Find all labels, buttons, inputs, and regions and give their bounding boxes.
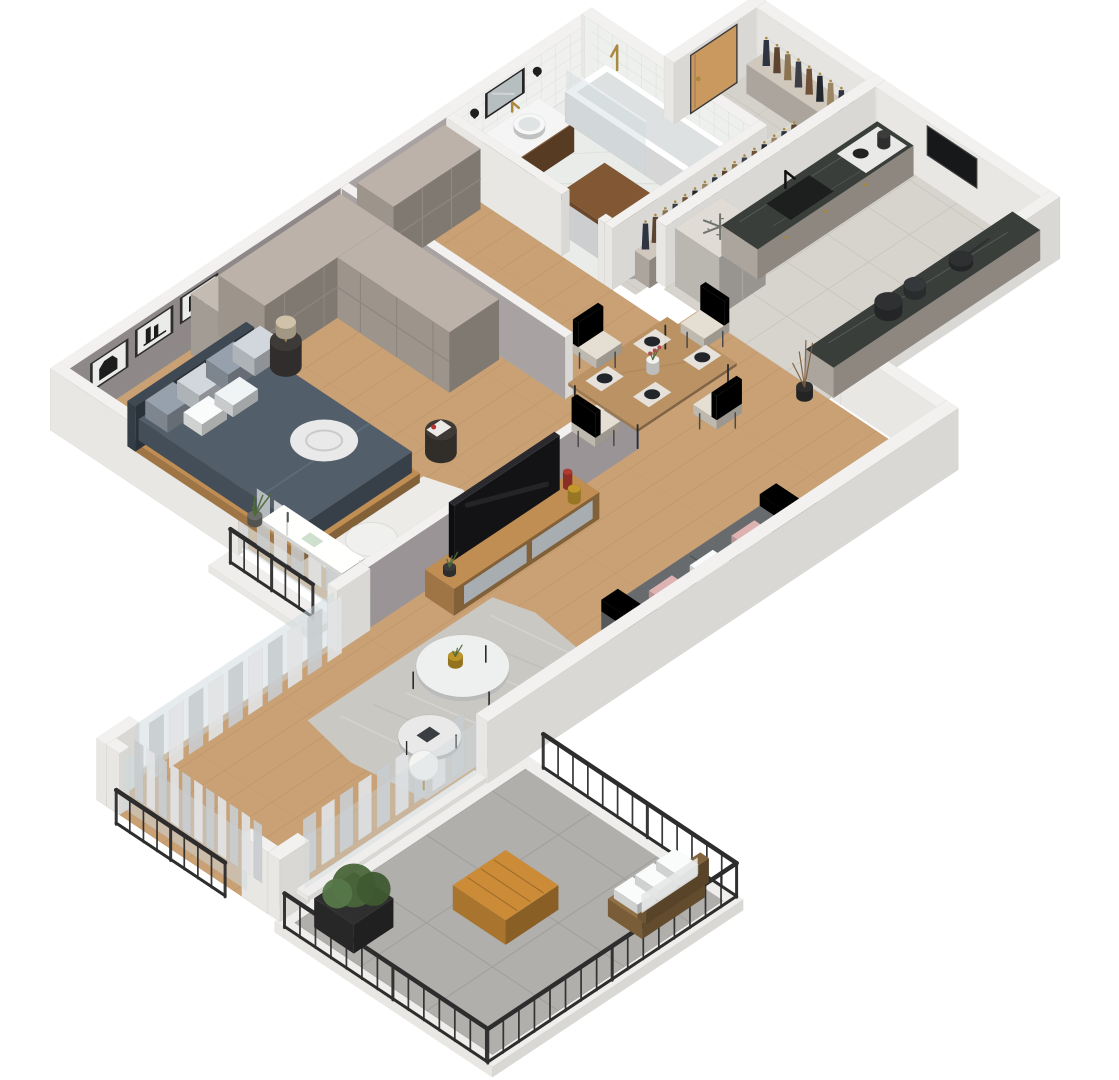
side-table	[425, 419, 457, 463]
apartment-render	[0, 0, 1119, 1080]
apartment-floor-plan-svg	[0, 0, 1119, 1080]
